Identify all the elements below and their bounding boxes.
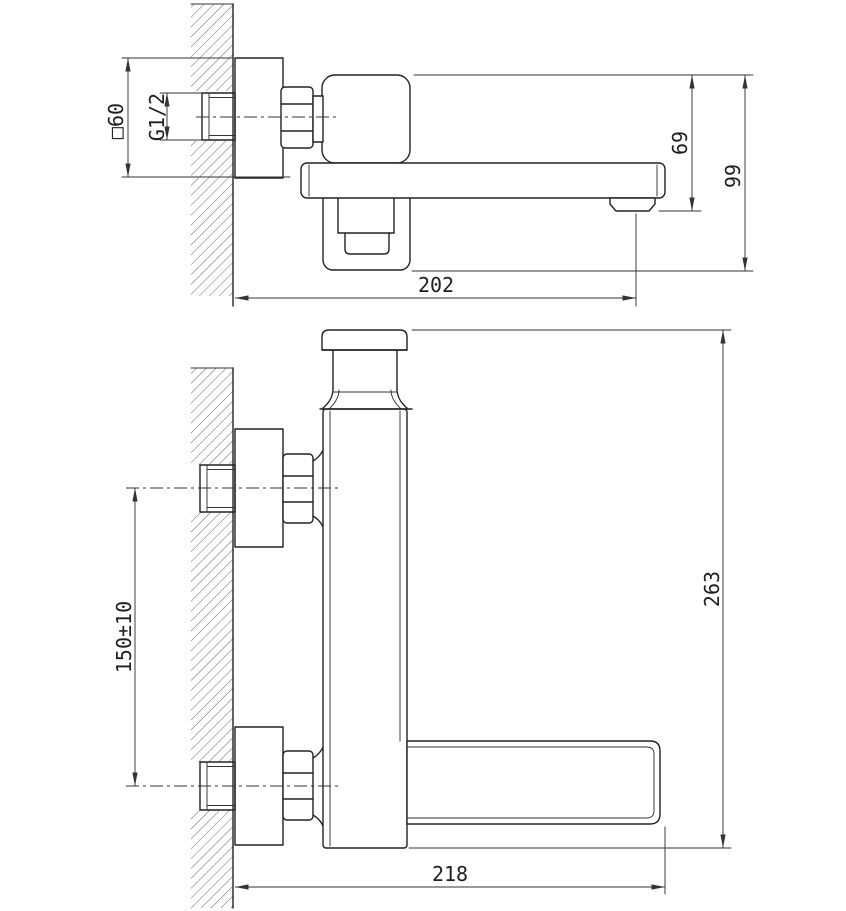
hex-nut-upper [283, 442, 326, 535]
wall-hatch-front-view [191, 368, 233, 908]
spout-front [407, 741, 660, 824]
dim-label-spout-reach: 202 [418, 273, 454, 297]
nut-adapter [313, 96, 323, 142]
top-view: □60 G1/2 69 99 202 [104, 4, 753, 306]
faucet-dimension-drawing: □60 G1/2 69 99 202 [0, 0, 846, 911]
technical-drawing-page: □60 G1/2 69 99 202 [0, 0, 846, 911]
dim-label-thread: G1/2 [145, 93, 169, 141]
wall-hatch-top-view [191, 4, 233, 296]
dim-label-overall-height: 263 [700, 571, 724, 607]
inlet-pipe [202, 93, 235, 140]
hex-nut-lower [283, 739, 326, 834]
dim-label-inlet-spacing: 150±10 [112, 601, 136, 673]
hex-nut [281, 87, 313, 148]
inlet-pipe-upper [200, 465, 235, 512]
dim-label-outlet-drop: 69 [668, 131, 692, 155]
escutcheon-plate [235, 58, 283, 178]
dim-label-overall-depth: 99 [721, 164, 745, 188]
dim-label-escutcheon: □60 [104, 103, 128, 139]
faucet-body [322, 75, 410, 163]
handle-front [320, 330, 412, 409]
spout-outlet [610, 198, 655, 211]
faucet-body-front [323, 409, 407, 848]
front-view: 150±10 263 218 [112, 330, 731, 908]
handle-cap [322, 330, 407, 350]
dim-label-overall-reach: 218 [432, 862, 468, 886]
